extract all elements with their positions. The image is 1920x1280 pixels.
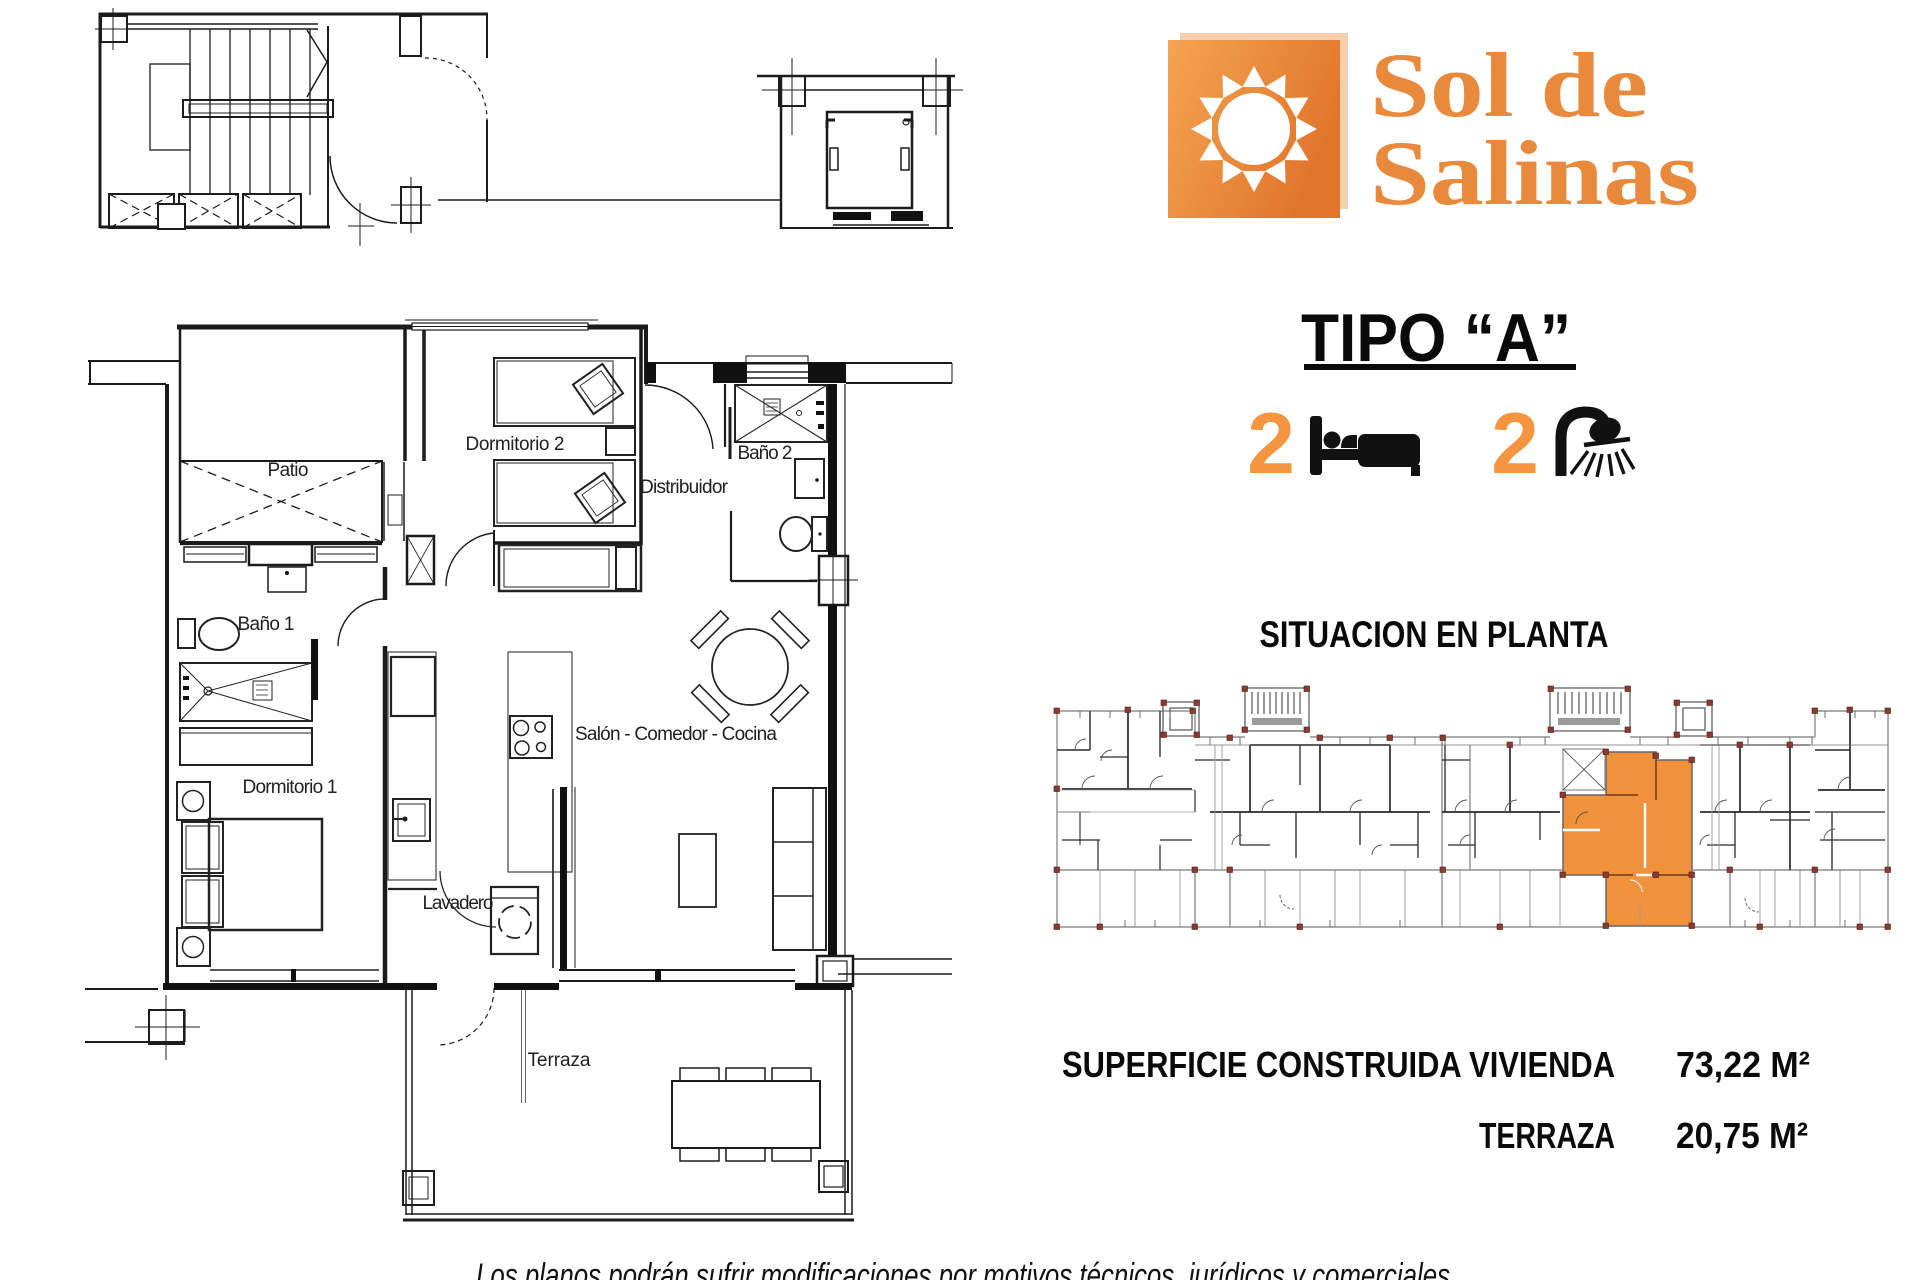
svg-text:SITUACION EN PLANTA: SITUACION EN PLANTA — [1260, 614, 1609, 655]
svg-text:SUPERFICIE CONSTRUIDA VIVIENDA: SUPERFICIE CONSTRUIDA VIVIENDA — [1062, 1044, 1615, 1085]
svg-text:73,22 M²: 73,22 M² — [1676, 1044, 1810, 1085]
svg-text:Dormitorio 2: Dormitorio 2 — [466, 434, 565, 455]
svg-text:Sol de: Sol de — [1370, 34, 1648, 136]
svg-text:Patio: Patio — [268, 460, 309, 481]
svg-text:2: 2 — [1491, 396, 1539, 492]
svg-text:2: 2 — [1247, 396, 1295, 492]
svg-text:Salón - Comedor - Cocina: Salón - Comedor - Cocina — [575, 724, 777, 745]
svg-text:Terraza: Terraza — [528, 1050, 591, 1071]
svg-text:Lavadero: Lavadero — [423, 893, 494, 914]
svg-text:Baño 1: Baño 1 — [238, 614, 295, 635]
svg-text:Salinas: Salinas — [1370, 122, 1699, 224]
svg-text:TERRAZA: TERRAZA — [1479, 1115, 1615, 1156]
svg-text:Los planos podrán sufrir modif: Los planos podrán sufrir modificaciones … — [476, 1257, 1450, 1280]
svg-text:Dormitorio 1: Dormitorio 1 — [243, 777, 338, 798]
svg-text:Baño 2: Baño 2 — [738, 443, 793, 464]
svg-text:Distribuidor: Distribuidor — [640, 477, 729, 498]
svg-text:20,75 M²: 20,75 M² — [1676, 1115, 1808, 1156]
